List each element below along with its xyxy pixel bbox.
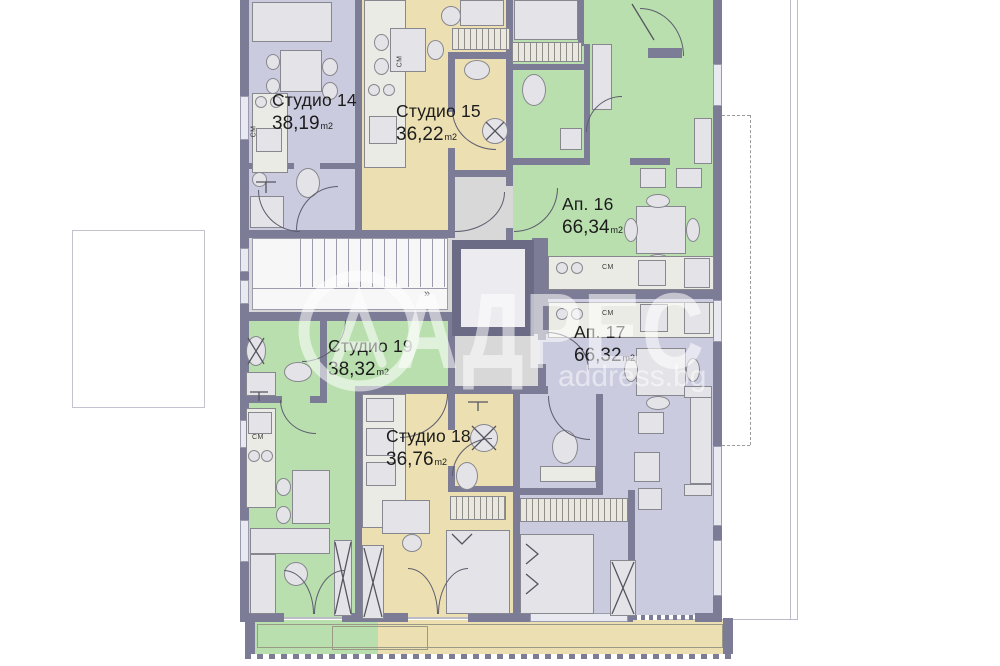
unit-area: 38,32m2	[328, 360, 413, 379]
chair	[646, 194, 670, 208]
sink	[246, 336, 266, 366]
wall	[448, 486, 518, 492]
wardrobe	[450, 496, 506, 520]
balcony-box	[332, 626, 428, 650]
armchair	[676, 168, 702, 188]
wall	[520, 488, 603, 495]
sofa	[690, 396, 712, 484]
wardrobe-x	[362, 545, 384, 619]
sink	[255, 96, 267, 108]
chair	[686, 218, 700, 242]
window	[713, 446, 722, 526]
dining-table	[636, 348, 686, 396]
unit-label-ap-17: Ап. 17 66,32m2	[574, 324, 635, 365]
side-table	[684, 484, 712, 496]
armchair	[640, 168, 666, 188]
stair-landing-line	[252, 288, 448, 289]
fridge	[684, 258, 710, 288]
bed	[252, 2, 332, 42]
window	[713, 64, 722, 106]
balcony-dashed-line	[750, 115, 751, 445]
desk	[382, 500, 430, 534]
wall	[538, 318, 546, 340]
window	[713, 540, 722, 596]
chair	[266, 54, 280, 70]
sink	[560, 128, 582, 150]
unit-label-studio-15: Студио 15 36,22m2	[396, 103, 481, 144]
terrace-line-right-inner	[797, 0, 798, 620]
wardrobe	[452, 28, 510, 50]
wall	[240, 396, 282, 403]
coffee-table	[638, 488, 662, 510]
sink	[252, 172, 267, 187]
chair	[441, 6, 461, 26]
unit-name: Студио 19	[328, 338, 413, 356]
appliance-label: СМ	[602, 310, 614, 317]
bed	[514, 0, 578, 40]
side-table	[684, 386, 712, 398]
wall	[723, 618, 733, 654]
sink	[571, 308, 583, 320]
wall	[448, 170, 455, 238]
unit-name: Ап. 16	[562, 196, 623, 214]
wall	[320, 163, 360, 169]
wardrobe-x	[610, 560, 636, 616]
sofa	[694, 118, 712, 164]
stove	[638, 260, 666, 286]
appliance-label: СМ	[396, 56, 403, 68]
chair	[322, 58, 338, 76]
unit-name: Ап. 17	[574, 324, 635, 342]
sink	[383, 84, 395, 96]
window	[240, 280, 249, 304]
window	[713, 300, 722, 342]
stove	[640, 304, 668, 332]
terrace-door-sill	[633, 615, 695, 620]
appliance-label: СМ	[250, 126, 257, 138]
unit-area: 36,76m2	[386, 450, 471, 469]
wall	[448, 170, 513, 177]
fridge	[684, 302, 710, 334]
bed	[520, 534, 594, 614]
balcony-railing	[245, 654, 737, 659]
unit-name: Студио 14	[272, 92, 357, 110]
wardrobe	[512, 42, 582, 62]
chair	[427, 40, 444, 60]
balcony-inner-line	[257, 624, 723, 648]
stove	[248, 412, 272, 434]
chair	[276, 478, 291, 496]
sofa	[250, 528, 330, 554]
unit-area: 38,19m2	[272, 114, 357, 133]
unit-label-studio-14: Студио 14 38,19m2	[272, 92, 357, 133]
wardrobe	[520, 498, 628, 522]
wall	[596, 394, 603, 494]
terrace-line-right-outer	[790, 0, 791, 620]
unit-label-ap-16: Ап. 16 66,34m2	[562, 196, 623, 237]
chair	[374, 34, 389, 51]
wall	[540, 290, 721, 299]
unit-area: 36,22m2	[396, 125, 481, 144]
wall	[245, 618, 255, 654]
elevator	[452, 240, 534, 336]
wall	[448, 148, 455, 172]
unit-name: Студио 15	[396, 103, 481, 121]
wall	[584, 44, 590, 164]
table	[390, 28, 426, 72]
chair	[686, 358, 700, 382]
chair	[374, 58, 389, 75]
window	[240, 520, 249, 562]
wall	[355, 390, 362, 618]
bed	[460, 0, 504, 26]
stairs-direction-marker: »	[424, 288, 430, 300]
stove	[369, 116, 397, 144]
sink	[368, 84, 380, 96]
toilet-symbol	[464, 60, 490, 80]
sink	[571, 262, 583, 274]
chair	[402, 534, 422, 552]
chair	[276, 506, 291, 524]
wall	[695, 613, 722, 622]
window	[240, 248, 249, 272]
balcony-dashed-line	[722, 115, 750, 116]
unit-area: 66,34m2	[562, 218, 623, 237]
wall	[240, 230, 455, 238]
wall	[513, 388, 520, 614]
appliance-label: СМ	[602, 264, 614, 271]
wall	[448, 394, 455, 430]
wall	[448, 52, 513, 59]
wall	[630, 158, 670, 165]
wall	[578, 0, 584, 46]
table	[292, 470, 330, 524]
chair	[646, 396, 670, 410]
floorplan-page: { "watermark": { "brand": "АДРЕС", "site…	[0, 0, 1000, 666]
sink	[556, 308, 568, 320]
chair	[624, 218, 638, 242]
door-sill	[284, 617, 342, 619]
armchair	[638, 412, 664, 434]
window	[240, 96, 249, 140]
wall	[506, 158, 590, 165]
appliance-label: СМ	[252, 434, 264, 441]
unit-area: 66,32m2	[574, 346, 635, 365]
wall	[240, 312, 455, 321]
wall	[506, 64, 588, 70]
unit-name: Студио 18	[386, 428, 471, 446]
dining-table	[636, 206, 686, 254]
door-sill	[408, 617, 468, 619]
toilet-symbol	[284, 362, 312, 382]
stair-treads	[300, 239, 446, 287]
toilet-symbol	[522, 74, 546, 106]
corridor	[448, 330, 546, 392]
bath-counter	[540, 466, 596, 482]
terrace-outline-left	[72, 230, 205, 408]
sink	[248, 450, 260, 462]
sink	[556, 262, 568, 274]
unit-label-studio-19: Студио 19 38,32m2	[328, 338, 413, 379]
sink	[261, 450, 273, 462]
stove	[366, 398, 394, 422]
table	[280, 50, 322, 92]
shower-tray	[246, 372, 276, 396]
unit-label-studio-18: Студио 18 36,76m2	[386, 428, 471, 469]
sofa	[250, 554, 276, 614]
coffee-table	[634, 452, 660, 482]
